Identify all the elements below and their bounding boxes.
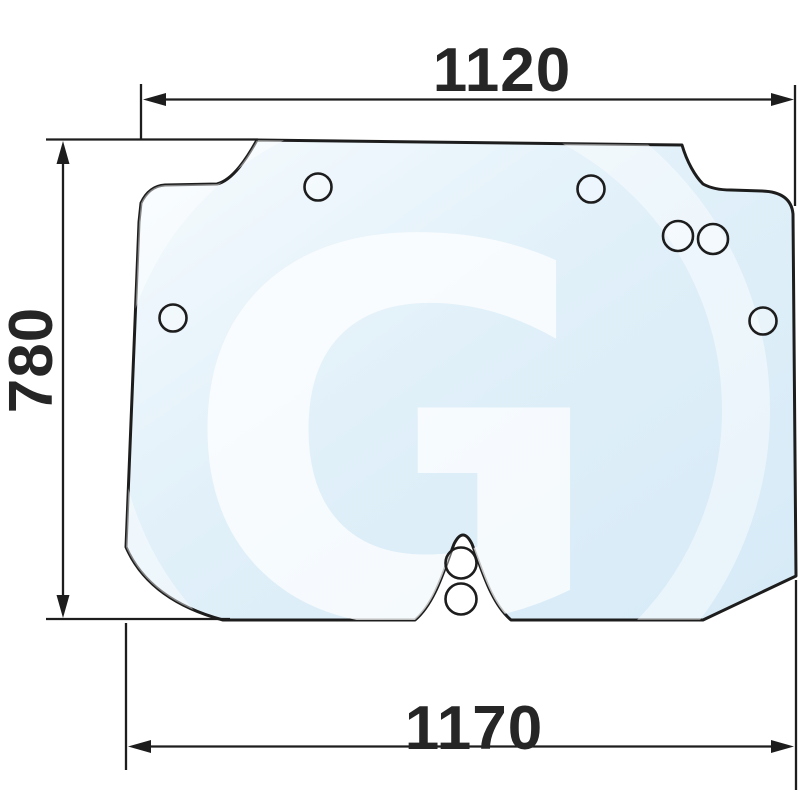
arrowhead-left-icon [143, 93, 166, 106]
glass-panel-technical-drawing: G 1120 780 [0, 0, 800, 800]
hole-bottom-tab-upper [446, 548, 477, 579]
arrowhead-up-icon [57, 141, 70, 164]
drawing-canvas: G 1120 780 [0, 0, 800, 800]
dimension-label-top-width: 1120 [433, 36, 572, 105]
hole-top-right [578, 176, 605, 203]
dimension-label-left-height: 780 [0, 307, 66, 413]
dimension-label-bottom-width: 1170 [405, 694, 544, 763]
arrowhead-left-icon [128, 740, 151, 753]
hole-upper-right-pair-right [698, 224, 728, 254]
watermark-letter-g: G [182, 135, 609, 741]
hole-top-left [305, 174, 332, 201]
hole-bottom-tab-lower [446, 584, 477, 615]
hole-left-side [160, 305, 187, 332]
arrowhead-right-icon [771, 93, 794, 106]
arrowhead-right-icon [771, 740, 794, 753]
hole-upper-right-pair-left [663, 221, 693, 251]
arrowhead-down-icon [57, 595, 70, 618]
hole-right-side [750, 308, 777, 335]
